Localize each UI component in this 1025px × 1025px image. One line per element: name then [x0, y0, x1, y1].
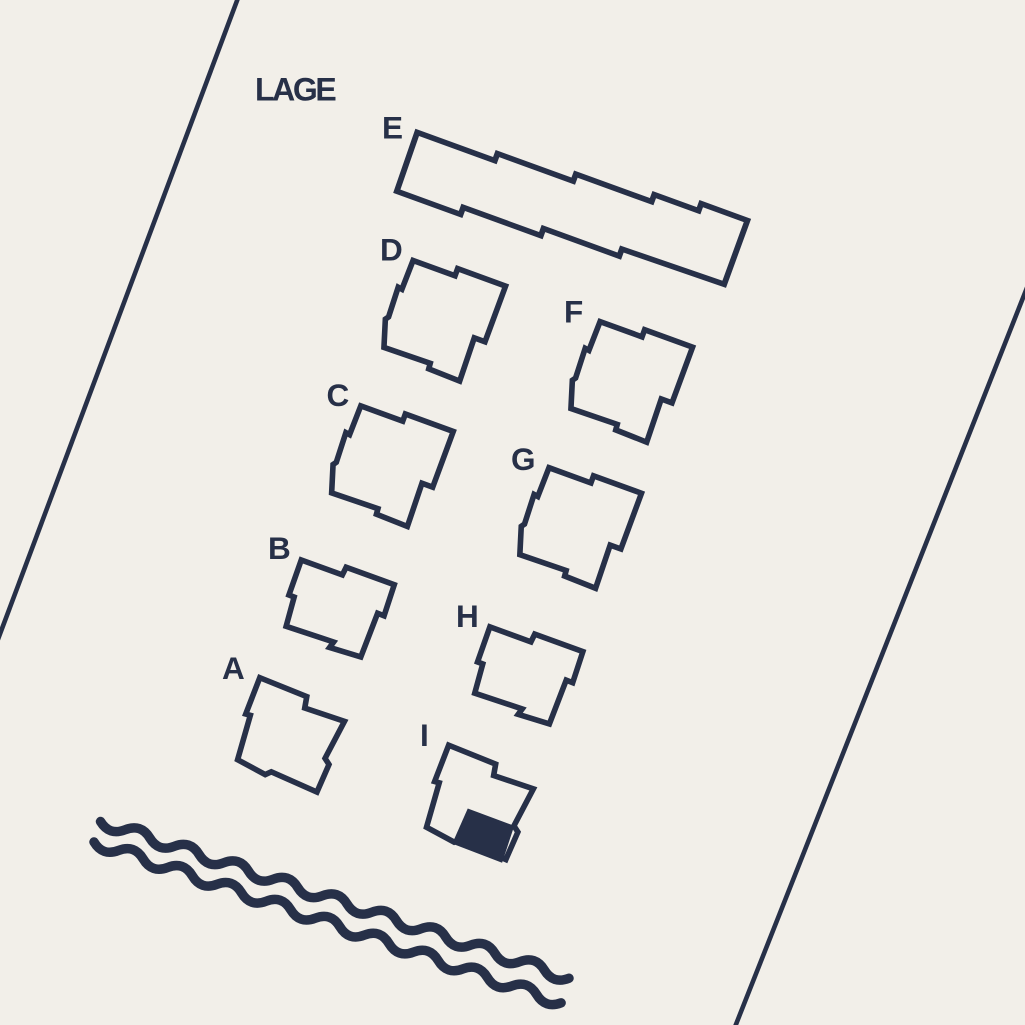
svg-text:H: H — [456, 598, 479, 634]
svg-text:B: B — [268, 530, 291, 566]
svg-text:E: E — [382, 110, 403, 146]
svg-text:C: C — [327, 377, 350, 413]
svg-text:G: G — [511, 441, 536, 477]
svg-text:I: I — [420, 717, 429, 753]
svg-text:LAGE: LAGE — [255, 72, 336, 108]
svg-text:A: A — [222, 650, 245, 686]
svg-text:D: D — [380, 232, 403, 268]
svg-text:F: F — [564, 294, 583, 330]
